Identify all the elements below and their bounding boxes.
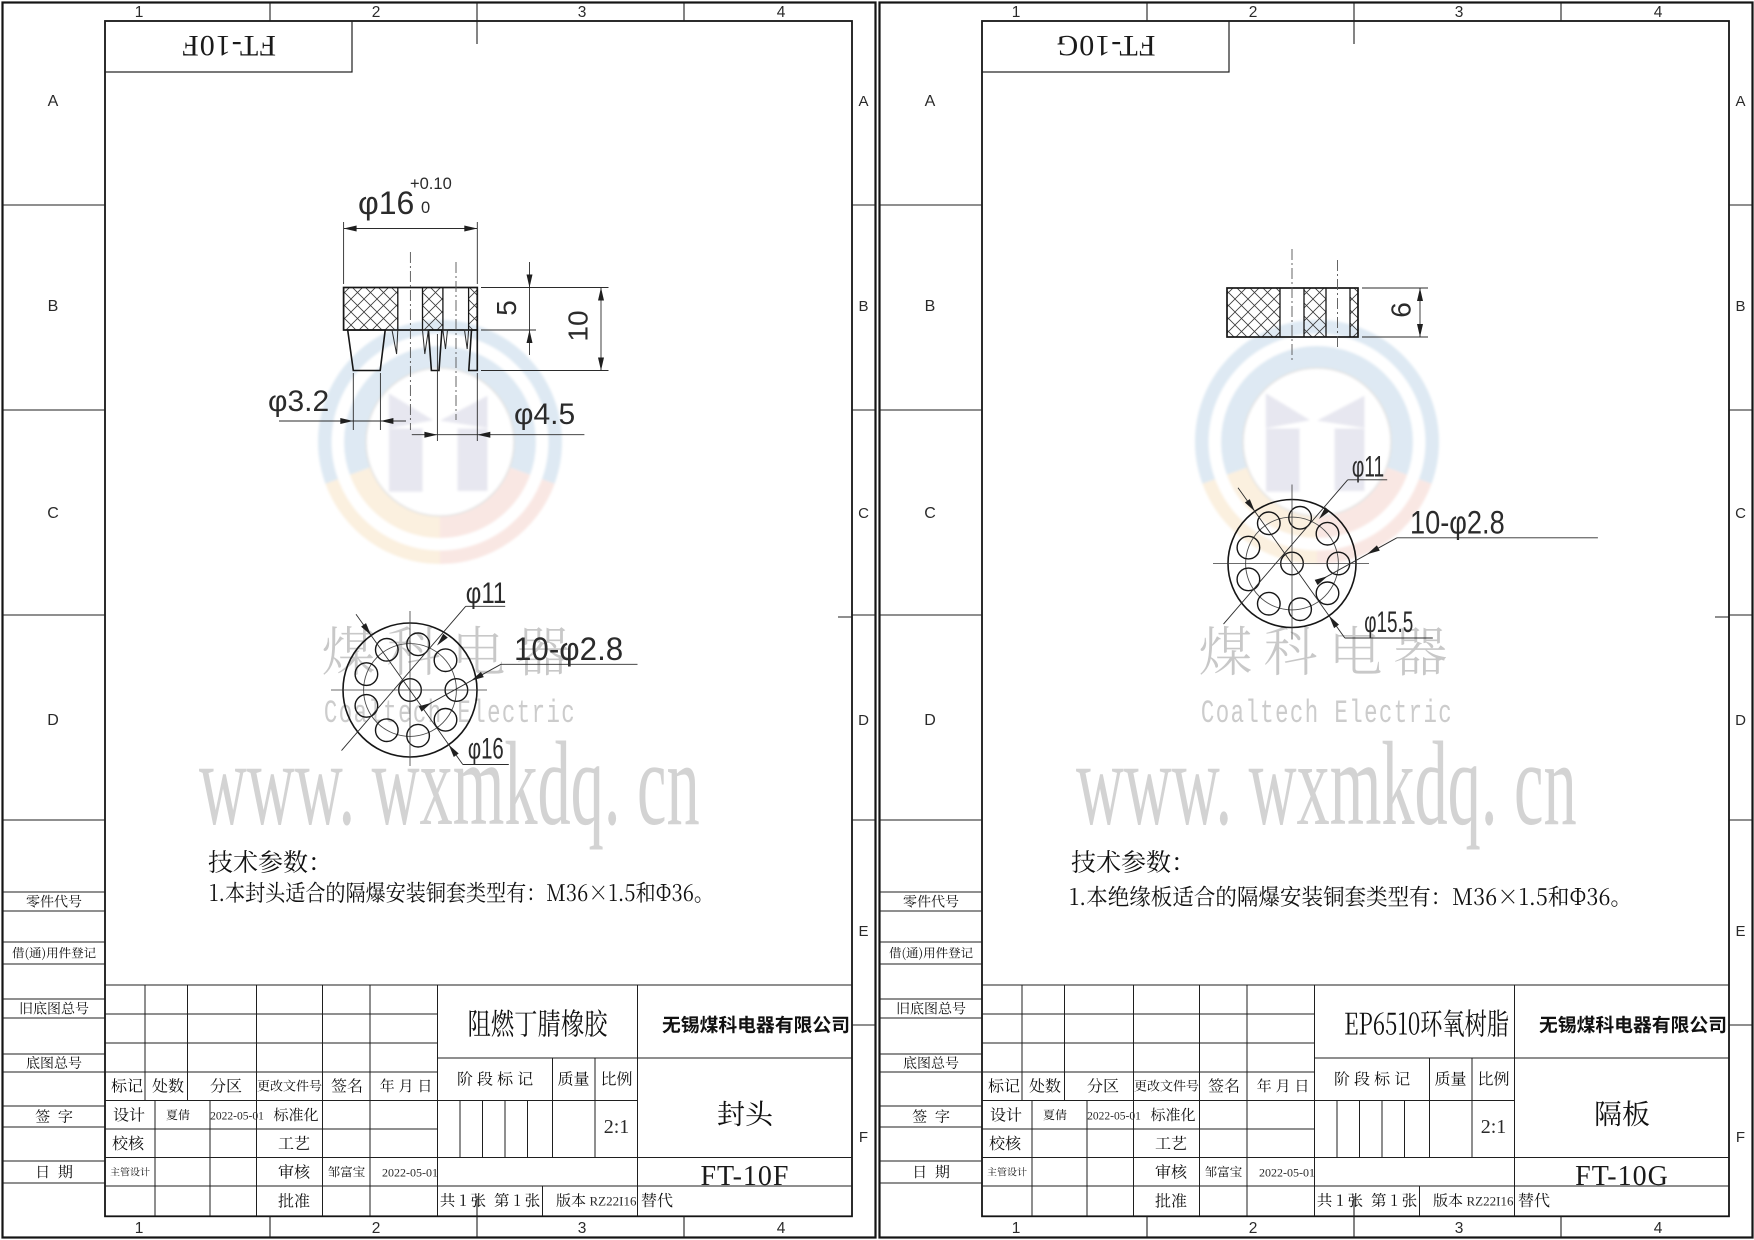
svg-text:A: A	[925, 93, 936, 110]
svg-text:2022-05-01: 2022-05-01	[1087, 1111, 1141, 1123]
svg-text:1: 1	[135, 1220, 144, 1237]
svg-text:RZ22I16: RZ22I16	[1467, 1194, 1514, 1209]
svg-text:D: D	[858, 712, 869, 729]
svg-text:FT-10F: FT-10F	[700, 1161, 789, 1192]
svg-text:B: B	[925, 298, 936, 315]
svg-text:B: B	[858, 298, 868, 315]
svg-text:φ11: φ11	[466, 575, 506, 609]
svg-text:10: 10	[562, 310, 593, 341]
svg-text:3: 3	[578, 1220, 587, 1237]
svg-text:2: 2	[1249, 4, 1258, 21]
svg-text:FT-10F: FT-10F	[181, 29, 276, 62]
svg-text:2: 2	[1249, 1220, 1258, 1237]
svg-text:2: 2	[372, 4, 381, 21]
svg-text:www. wxmkdq. cn: www. wxmkdq. cn	[199, 718, 700, 850]
svg-text:B: B	[48, 298, 59, 315]
svg-text:A: A	[48, 93, 59, 110]
svg-text:1: 1	[135, 4, 144, 21]
svg-text:RZ22I16: RZ22I16	[590, 1194, 637, 1209]
svg-text:5: 5	[491, 300, 522, 316]
svg-text:2022-05-01: 2022-05-01	[382, 1166, 438, 1180]
svg-text:φ15.5: φ15.5	[1364, 606, 1413, 640]
svg-text:φ4.5: φ4.5	[514, 398, 575, 431]
svg-text:10-φ2.8: 10-φ2.8	[514, 631, 623, 667]
svg-text:3: 3	[1455, 1220, 1464, 1237]
svg-text:4: 4	[777, 1220, 786, 1237]
svg-text:4: 4	[1654, 1220, 1663, 1237]
svg-text:A: A	[1735, 93, 1745, 110]
svg-text:φ11: φ11	[1352, 450, 1384, 483]
svg-text:FT-10G: FT-10G	[1575, 1161, 1669, 1192]
svg-text:C: C	[858, 505, 869, 522]
svg-text:3: 3	[578, 4, 587, 21]
svg-text:E: E	[858, 923, 868, 940]
svg-text:3: 3	[1455, 4, 1464, 21]
svg-text:D: D	[1735, 712, 1746, 729]
svg-text:D: D	[47, 712, 59, 729]
svg-text:φ3.2: φ3.2	[268, 385, 329, 418]
svg-text:C: C	[924, 505, 936, 522]
svg-text:C: C	[1735, 505, 1746, 522]
svg-text:0: 0	[421, 199, 430, 217]
svg-text:F: F	[859, 1129, 868, 1146]
svg-text:2022-05-01: 2022-05-01	[210, 1111, 264, 1123]
svg-text:φ16: φ16	[468, 733, 504, 766]
svg-text:B: B	[1735, 298, 1745, 315]
svg-text:6: 6	[1385, 302, 1416, 318]
svg-text:FT-10G: FT-10G	[1056, 29, 1156, 62]
svg-text:www. wxmkdq. cn: www. wxmkdq. cn	[1076, 718, 1577, 850]
svg-text:2:1: 2:1	[604, 1116, 630, 1138]
svg-text:1: 1	[1012, 4, 1021, 21]
svg-text:D: D	[924, 712, 936, 729]
svg-text:4: 4	[1654, 4, 1663, 21]
svg-text:F: F	[1736, 1129, 1745, 1146]
svg-text:2:1: 2:1	[1481, 1116, 1507, 1138]
svg-text:+0.10: +0.10	[410, 175, 452, 193]
svg-text:A: A	[858, 93, 868, 110]
svg-text:1: 1	[1012, 1220, 1021, 1237]
svg-text:2022-05-01: 2022-05-01	[1259, 1166, 1315, 1180]
svg-text:4: 4	[777, 4, 786, 21]
svg-text:2: 2	[372, 1220, 381, 1237]
svg-text:E: E	[1735, 923, 1745, 940]
svg-text:φ16: φ16	[358, 185, 414, 221]
svg-text:10-φ2.8: 10-φ2.8	[1410, 505, 1505, 541]
svg-text:C: C	[47, 505, 59, 522]
